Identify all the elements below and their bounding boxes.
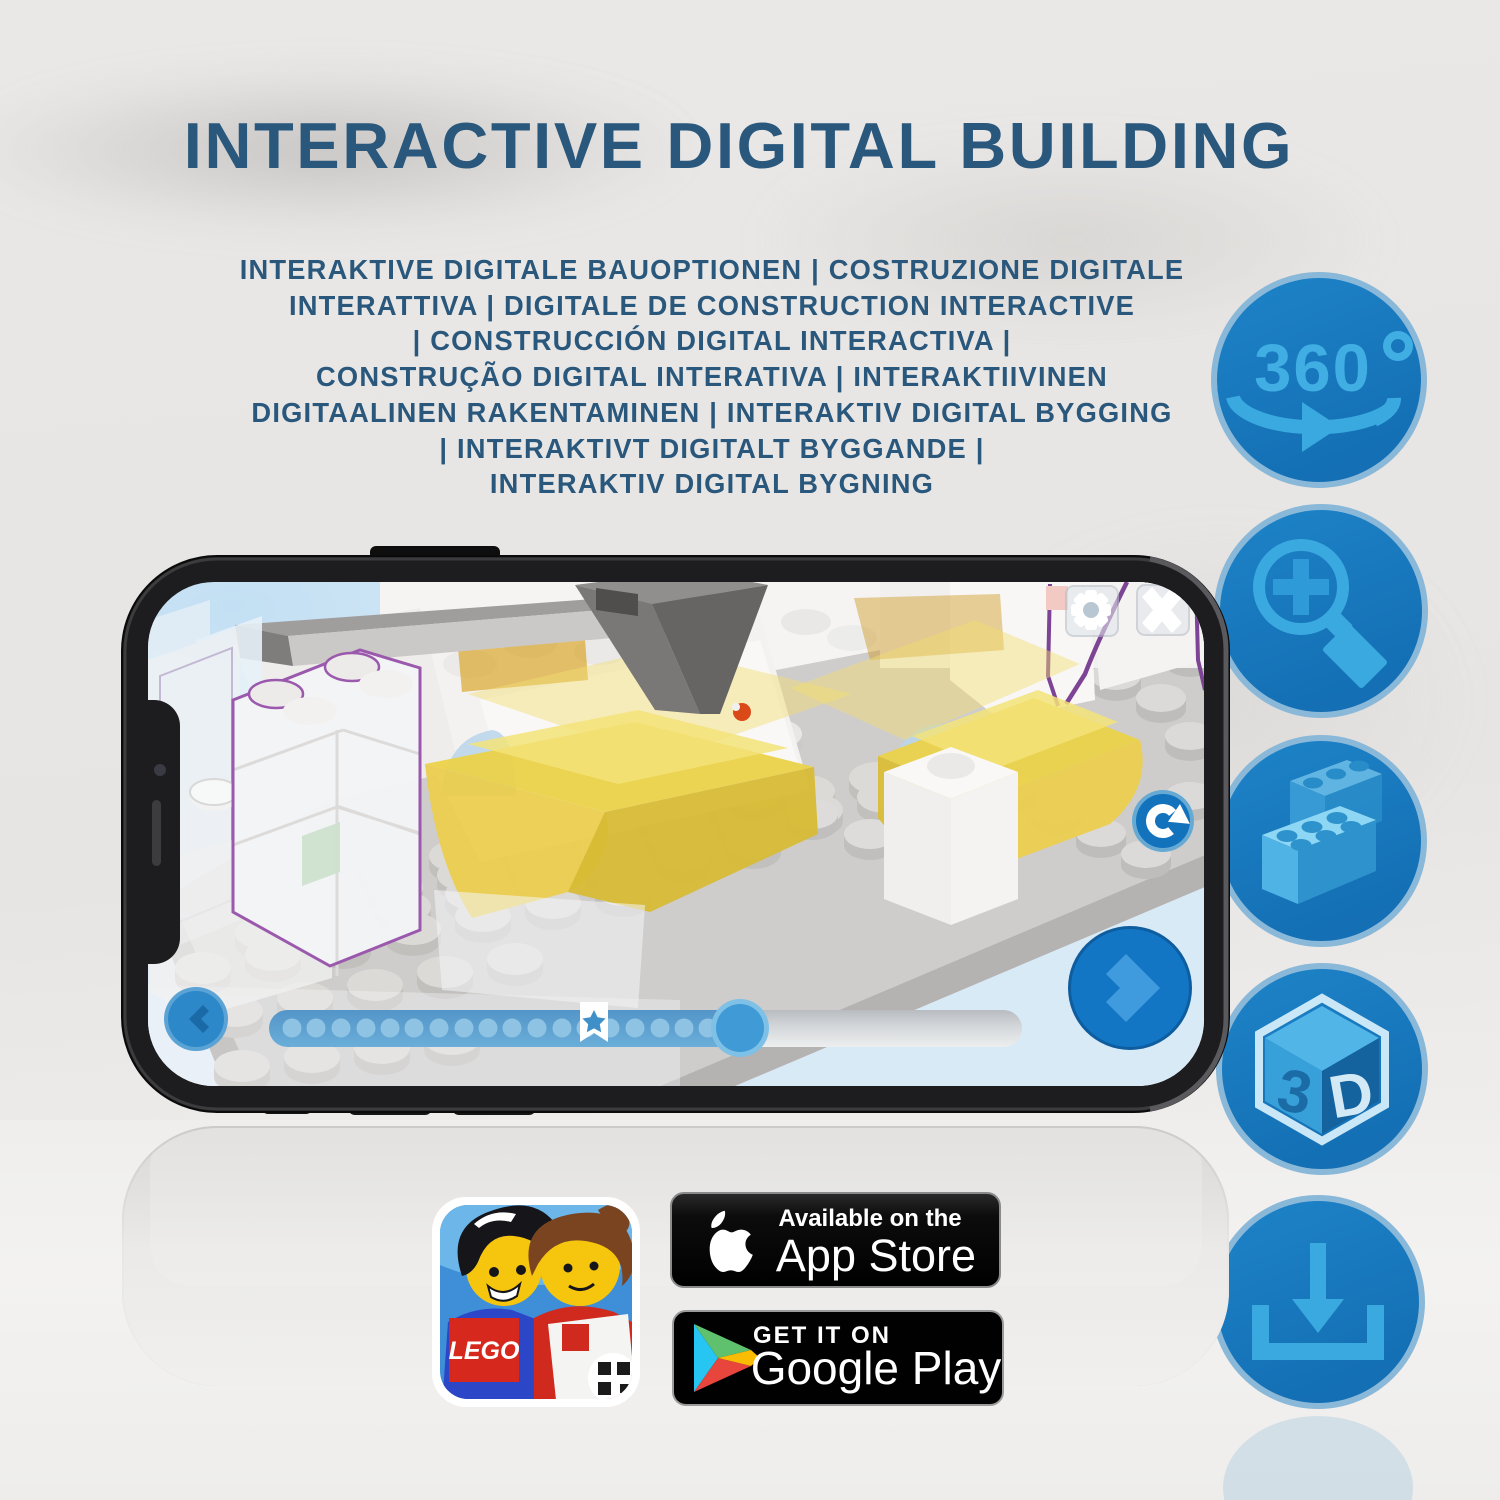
svg-text:LEGO: LEGO bbox=[449, 1337, 520, 1365]
svg-text:App Store: App Store bbox=[776, 1230, 976, 1281]
svg-text:Google Play: Google Play bbox=[751, 1342, 1002, 1394]
svg-text:360: 360 bbox=[1254, 331, 1372, 406]
svg-text:Available on the: Available on the bbox=[778, 1205, 961, 1232]
